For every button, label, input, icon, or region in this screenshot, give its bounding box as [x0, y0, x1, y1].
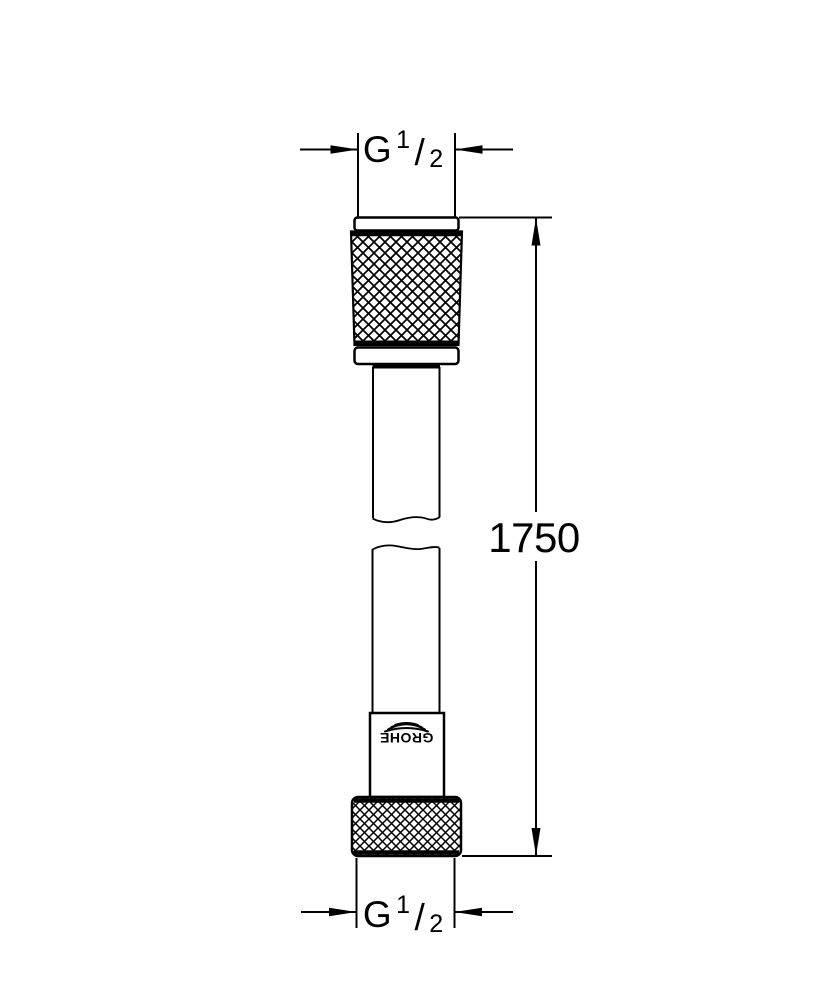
dim-arrowhead-right-icon [331, 145, 359, 154]
thread-label-slash: / [414, 132, 425, 173]
dim-arrowhead-up-icon [532, 218, 541, 246]
thread-label-denominator: 2 [429, 910, 443, 938]
hose-lower-section [373, 545, 440, 713]
dim-arrowhead-left-icon [455, 908, 483, 917]
top-nut-base-ring [355, 348, 459, 365]
ferrule-body [370, 713, 444, 797]
hose-break-line-lower [373, 545, 440, 549]
dim-arrowhead-left-icon [455, 145, 483, 154]
thread-label-numerator: 1 [396, 126, 410, 154]
hose-break-line-upper [373, 517, 440, 522]
thread-label-denominator: 2 [429, 145, 443, 173]
dim-arrowhead-right-icon [329, 908, 357, 917]
top-thread-label: G 1 / 2 [363, 126, 443, 173]
thread-label-numerator: 1 [396, 891, 410, 919]
top-connector-nut [351, 218, 462, 367]
hose-upper-section [373, 367, 440, 522]
top-thread-dimension: G 1 / 2 [300, 126, 513, 217]
thread-label-g: G [363, 894, 392, 935]
shower-hose-technical-drawing: G 1 / 2 [0, 0, 834, 1000]
bottom-connector-nut [352, 797, 461, 856]
top-nut-rim [355, 218, 459, 231]
bottom-ferrule: GROHE [370, 713, 444, 797]
thread-label-slash: / [414, 897, 425, 938]
bottom-thread-dimension: G 1 / 2 [301, 858, 513, 938]
bottom-nut-knurl [352, 797, 461, 856]
top-nut-knurl [351, 232, 462, 346]
dim-arrowhead-down-icon [532, 828, 541, 856]
length-dimension: 1750 [459, 218, 580, 857]
bottom-thread-label: G 1 / 2 [363, 891, 443, 938]
drawing-page: G 1 / 2 [0, 0, 834, 1000]
length-label: 1750 [488, 514, 579, 561]
thread-label-g: G [363, 129, 392, 170]
logo-brand-text: GROHE [380, 730, 434, 746]
